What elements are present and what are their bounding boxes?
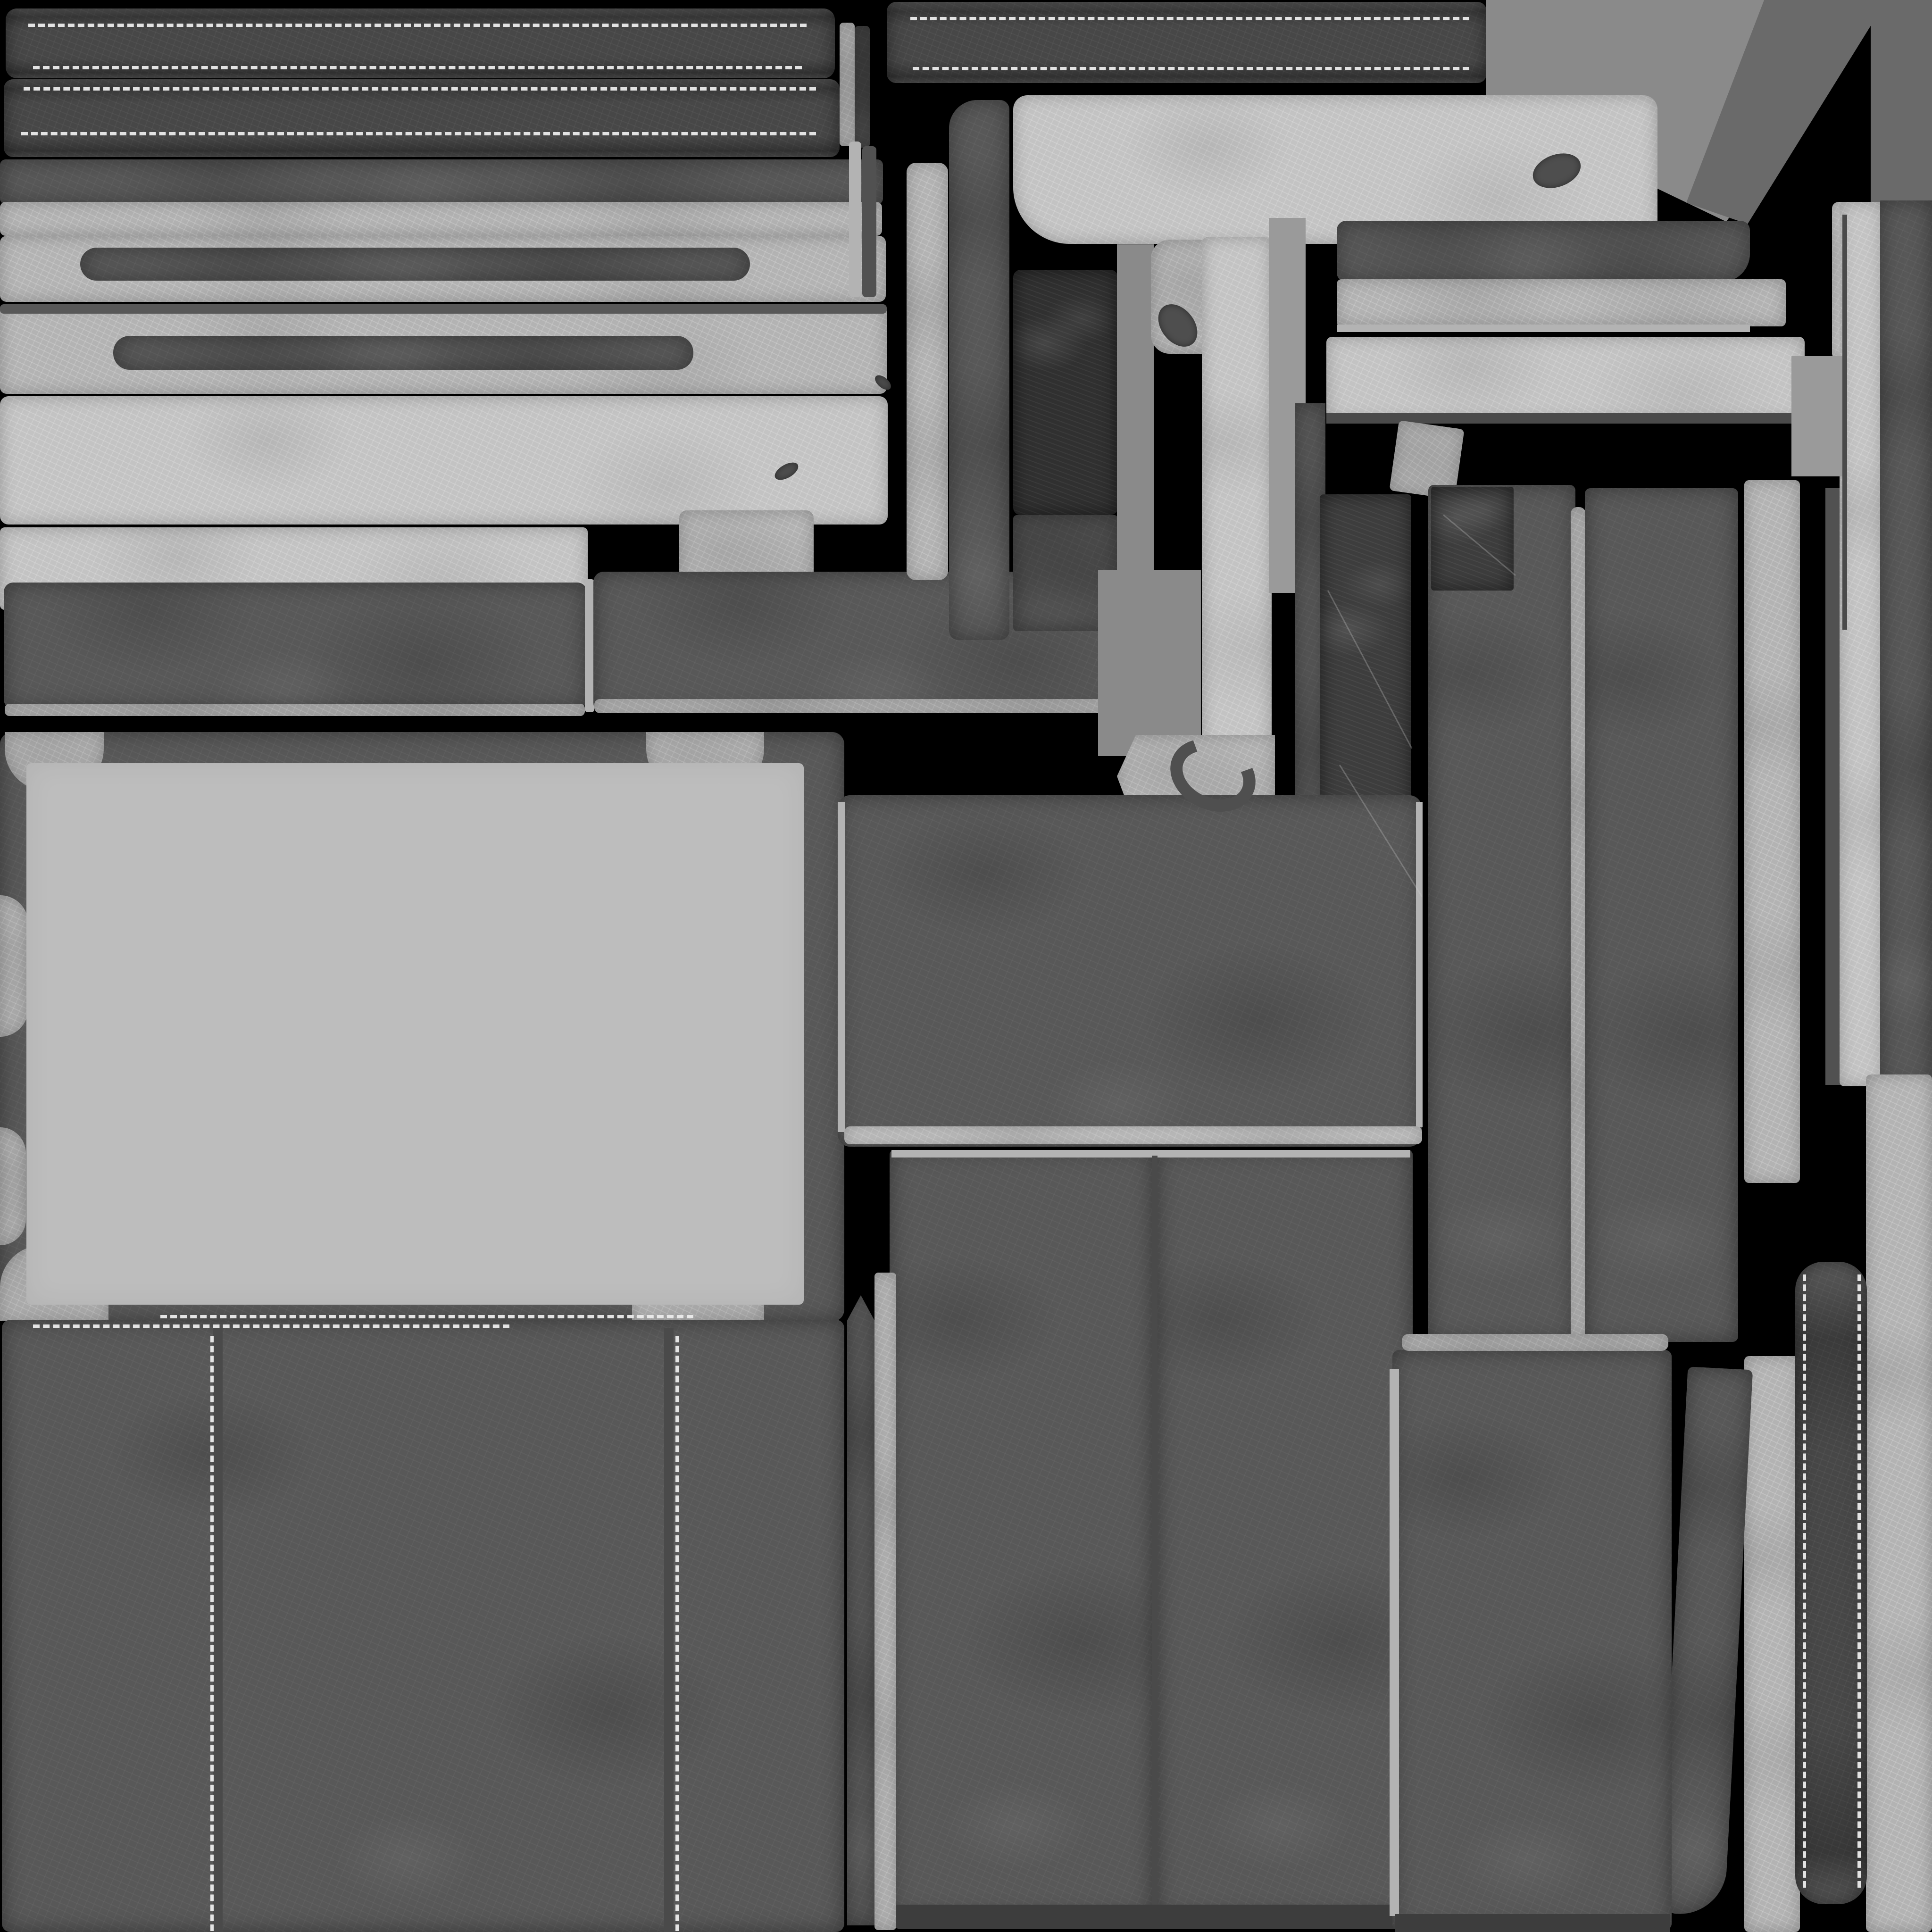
top-right-block [1871, 0, 1932, 210]
bar-1-dark [4, 583, 587, 709]
bottom-right-panel-bottom-dark [1395, 1914, 1670, 1932]
bar-1-light-edge [5, 704, 585, 716]
mid-filler-2 [1098, 570, 1201, 756]
stitch-frame-bottom [160, 1315, 693, 1318]
bar-2-light-edge [594, 699, 1181, 713]
strip-4-dark-band [80, 248, 750, 281]
stitch-tbar-bottom [913, 67, 1469, 70]
frame-left-arch [0, 895, 28, 1037]
left-of-t-sliver-light [849, 142, 861, 297]
band-c-bright [1326, 337, 1805, 421]
bars-gap-sliver [585, 579, 594, 712]
stitch-strip1-bottom [33, 66, 802, 69]
center-panels-top-edge [891, 1150, 1410, 1158]
frame-left-arch-2 [0, 1127, 26, 1245]
center-panels-gap-seam [1152, 1156, 1158, 1915]
stitch-right-strip-right [1857, 1274, 1861, 1888]
vertical-dark-col [949, 100, 1009, 640]
big-rect-bottom-light-edge [844, 1126, 1422, 1144]
strip-5-dark-band [113, 336, 693, 370]
big-center-rect [838, 795, 1422, 1147]
panel-seam-groove-1 [213, 1328, 223, 1932]
right-bright-crease-line [1842, 215, 1847, 630]
very-dark-block [1013, 270, 1118, 515]
big-rect-left-sliver [838, 802, 845, 1132]
strip-end-cap-light [840, 23, 855, 146]
stitch-panel-seam-2 [675, 1336, 679, 1931]
left-of-t-sliver-dark [862, 146, 876, 297]
stitch-right-strip-left [1803, 1274, 1806, 1888]
stitch-panel-seam-1 [210, 1336, 214, 1931]
big-rect-right-sliver [1416, 802, 1423, 1127]
stitch-tbar-top [910, 17, 1469, 20]
right-dark-edge-region [1880, 200, 1932, 1087]
center-panels-bottom-dark [891, 1905, 1412, 1929]
bottom-left-panel [2, 1320, 844, 1932]
stitch-panel-top [33, 1324, 509, 1328]
band-c-dark-seam [1326, 413, 1805, 424]
narrow-dark-strip [847, 1295, 874, 1925]
stitch-strip1-top [28, 24, 807, 27]
right-light-col-upper [1744, 480, 1800, 1183]
strip-top-2 [4, 79, 840, 157]
center-bottom-panel-right [1156, 1150, 1413, 1918]
dark-band-right [1337, 221, 1750, 282]
mid-gray-tab [1791, 356, 1842, 476]
far-right-light-col [1866, 1074, 1932, 1932]
band-b-light [1337, 279, 1786, 326]
strip-end-cap-dark [855, 26, 870, 148]
center-bottom-panel-left [890, 1150, 1154, 1918]
texture-atlas-canvas [0, 0, 1932, 1932]
light-sliver-between-panels [874, 1273, 896, 1930]
strip-3-dark [0, 159, 883, 204]
uv-placeholder-square [26, 763, 804, 1305]
vertical-light-col [907, 163, 948, 580]
right-col-dark-2 [1585, 488, 1738, 1342]
bottom-right-panel-left-sliver [1390, 1369, 1399, 1916]
panel-seam-groove-2 [664, 1328, 674, 1932]
bottom-right-panel [1392, 1350, 1672, 1930]
horizontal-light-seam [1402, 1334, 1668, 1351]
mid-filler-1 [1117, 244, 1154, 572]
stitch-strip2-bottom [21, 132, 816, 135]
strip-3-light [0, 202, 882, 236]
t-bar-strip [887, 2, 1487, 83]
strip-6-bright [0, 396, 888, 525]
right-col-dark-1 [1428, 485, 1575, 1341]
right-light-col-lower [1744, 1356, 1800, 1932]
j-curve-strip [1659, 1366, 1753, 1916]
stitch-strip2-top [24, 87, 816, 91]
thin-light-line [1337, 325, 1750, 332]
right-light-crease [1571, 507, 1586, 1341]
strip-5-dark-top-edge [0, 304, 887, 314]
